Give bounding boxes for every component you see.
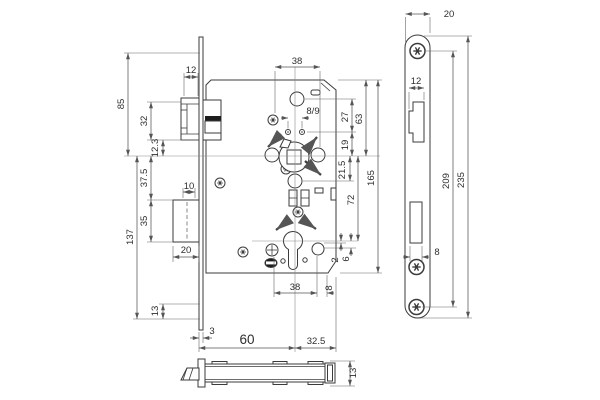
dim-label-60: 60 [239, 332, 254, 347]
dim-label-20-faceplate: 20 [444, 9, 455, 20]
dim-label-209: 209 [441, 173, 452, 189]
faceplate-screw-icon [410, 44, 425, 59]
dim-label-8-case: 8 [324, 285, 335, 290]
spindle-square-hole [287, 150, 301, 164]
dim-label-235: 235 [456, 172, 467, 188]
dim-label-35: 35 [139, 216, 150, 227]
dim-label-37-5: 37.5 [139, 169, 150, 188]
dim-label-32-5: 32.5 [307, 336, 326, 347]
dim-label-38-bottom: 38 [290, 282, 301, 293]
case-screw-icon [215, 178, 225, 188]
dim-label-32: 32 [139, 116, 150, 127]
faceplate-edge [199, 37, 203, 330]
lock-technical-drawing: 85 137 32 12.3 37.5 35 13 12 10 20 [0, 0, 600, 400]
dim-label-13-side: 13 [150, 306, 161, 317]
dim-label-8-faceplate: 8 [434, 247, 439, 258]
deadbolt-cutout [410, 202, 422, 243]
dim-label-10: 10 [184, 181, 195, 192]
dim-label-38-top: 38 [292, 56, 303, 67]
case-screw-icon [293, 207, 303, 217]
dim-label-12-3: 12.3 [150, 139, 161, 158]
dim-label-165: 165 [366, 170, 377, 186]
dim-label-63: 63 [354, 114, 365, 125]
dim-label-20-deadbolt: 20 [181, 245, 192, 256]
dim-label-6: 6 [341, 256, 352, 261]
case-screw-icon [268, 115, 278, 125]
dim-label-3: 3 [209, 326, 214, 337]
dim-label-27: 27 [340, 112, 351, 123]
end-bracket [325, 363, 335, 383]
dim-label-137: 137 [125, 229, 136, 245]
bottom-view [181, 359, 335, 387]
faceplate-screw-icon [409, 300, 424, 315]
dim-label-13-bottom: 13 [348, 368, 359, 379]
dim-label-12-faceplate: 12 [411, 76, 422, 87]
drawing-canvas: 85 137 32 12.3 37.5 35 13 12 10 20 [0, 0, 600, 400]
dim-label-2: 2 [330, 257, 341, 262]
dim-label-21-5: 21.5 [337, 161, 348, 180]
slotted-screw [265, 259, 277, 268]
case-screw-icon [238, 247, 248, 257]
dim-label-72: 72 [346, 195, 357, 206]
front-view [173, 37, 336, 330]
dim-label-12-latch: 12 [186, 65, 197, 76]
dim-label-19: 19 [340, 140, 351, 151]
latch-tip-bottom [181, 368, 199, 380]
faceplate-screw-icon [409, 260, 424, 275]
dim-label-8-9: 8/9 [306, 106, 319, 117]
deadbolt [173, 200, 199, 242]
latch-slot [205, 116, 221, 121]
deadbolt-body [173, 200, 199, 242]
dim-label-85: 85 [116, 99, 127, 110]
